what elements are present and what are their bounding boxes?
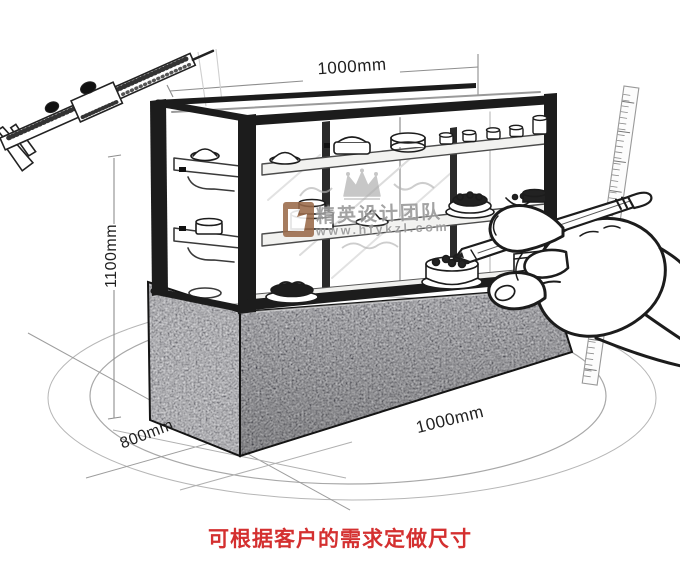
dark-gateau xyxy=(523,190,546,203)
cake-slice-plate xyxy=(356,210,388,226)
pencil-eraser xyxy=(628,193,651,208)
product-illustration-canvas: 精英设计团队 www.hfykzl.com 1000mm 1100mm 800m… xyxy=(0,0,680,578)
dimension-label-height: 1100mm xyxy=(103,211,121,301)
customization-caption: 可根据客户的需求定做尺寸 xyxy=(0,523,680,553)
dark-fruit-tart xyxy=(266,282,318,303)
cake-dome-plate xyxy=(270,153,300,165)
cake-side-stack xyxy=(196,219,222,235)
sketch-illustration xyxy=(0,0,680,578)
cake-bowl-top-left xyxy=(191,149,219,161)
cake-covered-dish xyxy=(334,137,370,154)
